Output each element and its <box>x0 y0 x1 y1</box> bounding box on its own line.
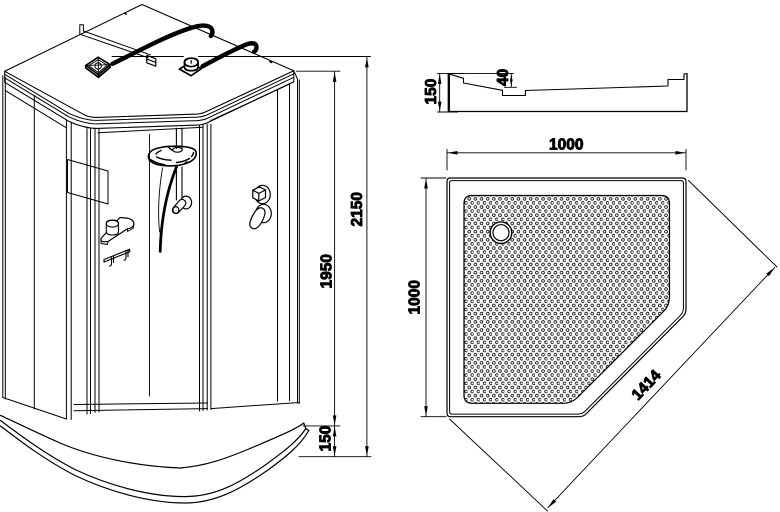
svg-text:1000: 1000 <box>549 137 583 154</box>
svg-text:150: 150 <box>423 79 440 105</box>
svg-text:40: 40 <box>495 69 512 86</box>
svg-text:150: 150 <box>318 426 335 452</box>
svg-text:1950: 1950 <box>319 254 336 288</box>
svg-text:1000: 1000 <box>407 280 424 314</box>
svg-text:1414: 1414 <box>629 367 665 404</box>
svg-text:2150: 2150 <box>349 192 366 226</box>
